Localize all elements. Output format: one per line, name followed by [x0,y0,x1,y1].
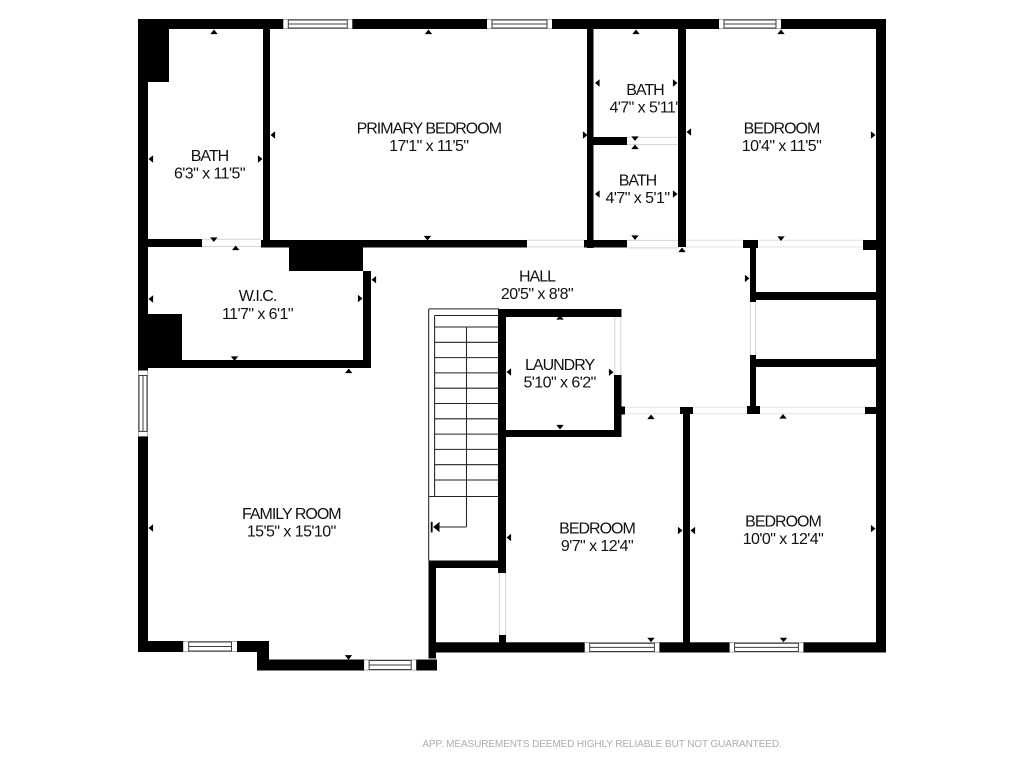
svg-text:LAUNDRY: LAUNDRY [525,357,596,374]
svg-text:9'7" x 12'4": 9'7" x 12'4" [561,538,633,555]
svg-text:15'5" x 15'10": 15'5" x 15'10" [247,524,336,541]
svg-text:4'7" x 5'1": 4'7" x 5'1" [606,190,670,207]
svg-text:10'0" x 12'4": 10'0" x 12'4" [743,531,824,548]
svg-text:FAMILY ROOM: FAMILY ROOM [242,506,341,523]
svg-text:BEDROOM: BEDROOM [559,521,635,538]
svg-text:BEDROOM: BEDROOM [745,514,821,531]
svg-text:20'5" x 8'8": 20'5" x 8'8" [501,286,573,303]
svg-text:W.I.C.: W.I.C. [239,288,277,305]
svg-text:6'3" x 11'5": 6'3" x 11'5" [174,166,245,183]
svg-text:11'7" x 6'1": 11'7" x 6'1" [222,306,293,323]
svg-text:BATH: BATH [619,173,657,190]
svg-text:BATH: BATH [626,82,664,99]
svg-text:10'4" x 11'5": 10'4" x 11'5" [742,138,821,155]
svg-text:BATH: BATH [191,148,229,165]
svg-text:17'1" x 11'5": 17'1" x 11'5" [389,138,468,155]
svg-text:BEDROOM: BEDROOM [744,121,820,138]
svg-text:4'7" x 5'11": 4'7" x 5'11" [609,100,680,117]
svg-text:HALL: HALL [519,269,556,286]
svg-text:5'10" x 6'2": 5'10" x 6'2" [523,374,595,391]
svg-text:PRIMARY BEDROOM: PRIMARY BEDROOM [357,120,502,137]
svg-text:APP. MEASUREMENTS DEEMED HIGHL: APP. MEASUREMENTS DEEMED HIGHLY RELIABLE… [422,739,781,750]
